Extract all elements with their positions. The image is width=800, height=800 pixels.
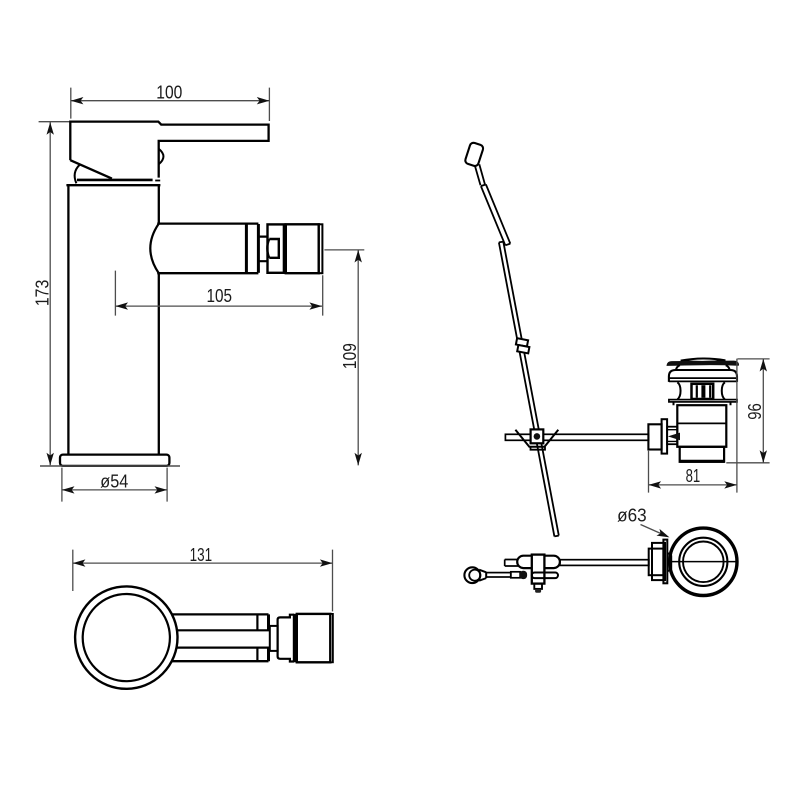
svg-text:109: 109	[339, 343, 360, 369]
svg-text:173: 173	[31, 280, 52, 307]
svg-text:96: 96	[744, 403, 765, 420]
svg-text:ø63: ø63	[617, 505, 647, 526]
svg-text:105: 105	[207, 285, 233, 306]
svg-text:131: 131	[190, 544, 213, 565]
svg-text:81: 81	[686, 465, 701, 486]
svg-text:ø54: ø54	[100, 471, 128, 492]
svg-text:100: 100	[156, 81, 182, 102]
